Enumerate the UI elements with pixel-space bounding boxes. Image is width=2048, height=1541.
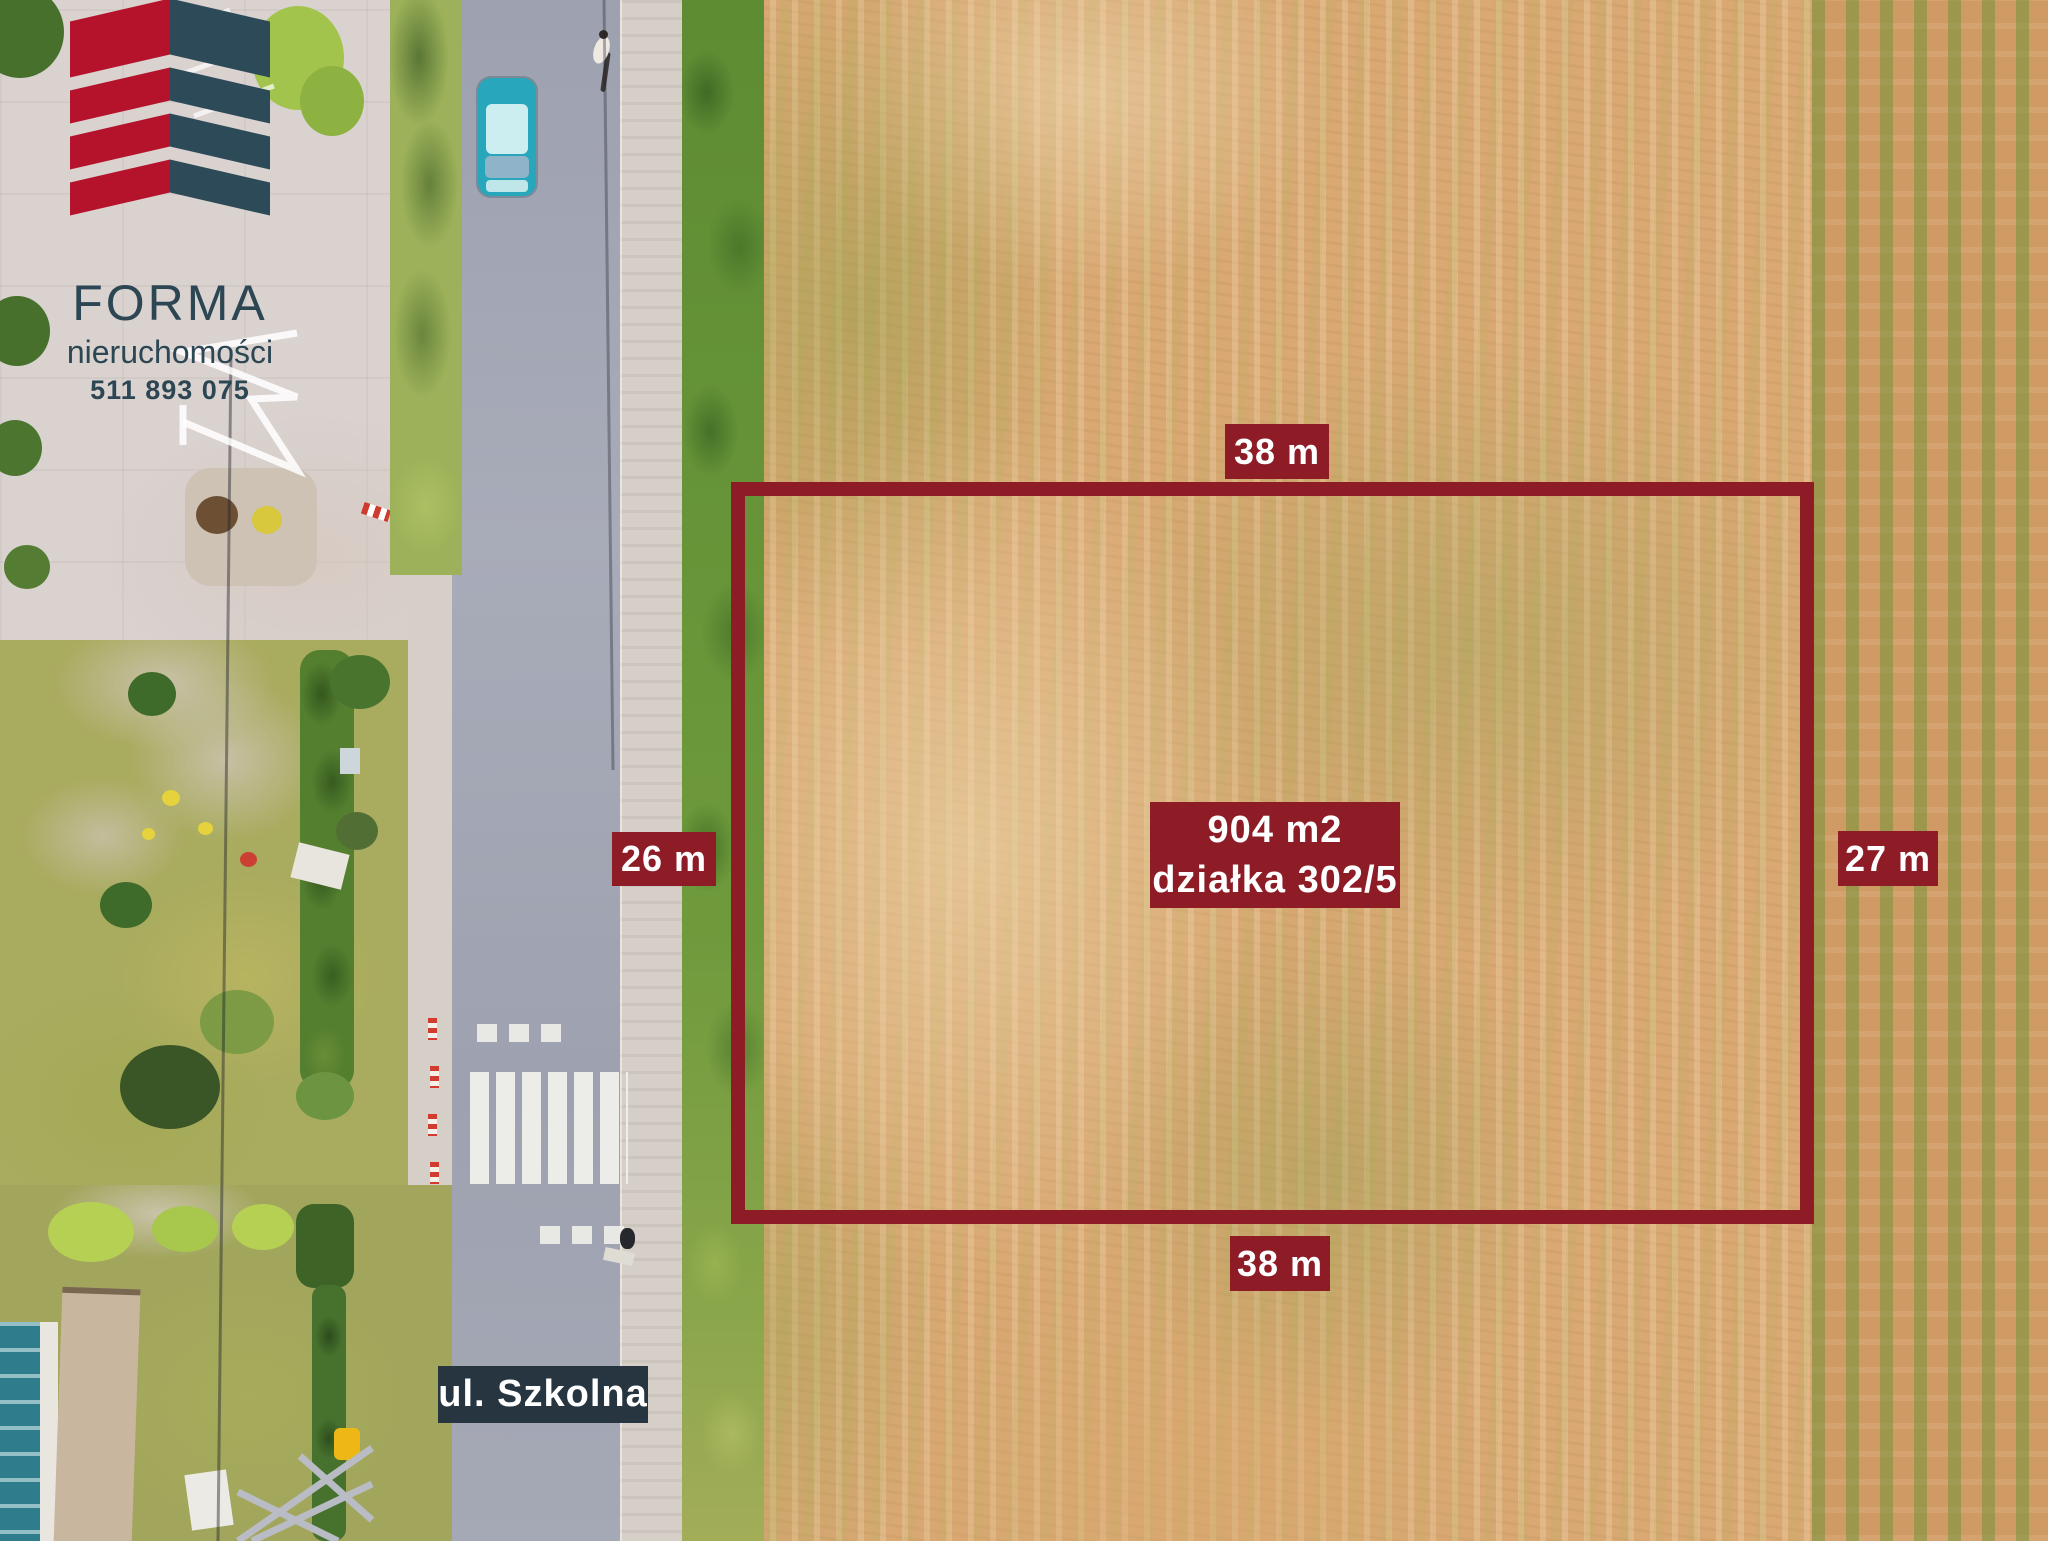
bright-tree [152, 1206, 218, 1252]
barrier-post [430, 1066, 439, 1088]
logo-subtitle: nieruchomości [52, 334, 288, 371]
yellow-container [334, 1428, 360, 1460]
hedge-block [296, 1204, 354, 1288]
agency-logo: FORMA nieruchomości 511 893 075 [52, 10, 288, 406]
pedestrian-crossing [470, 1072, 628, 1184]
logo-brand-name: FORMA [52, 274, 288, 332]
teal-car [478, 78, 536, 196]
asphalt-road [452, 0, 622, 1541]
brown-shrub [196, 496, 238, 534]
plot-area-label: 904 m2 działka 302/5 [1150, 802, 1400, 908]
logo-phone-number: 511 893 075 [52, 375, 288, 406]
yellow-flowers [198, 822, 213, 835]
bright-tree [232, 1204, 294, 1250]
plot-parcel-number: działka 302/5 [1152, 855, 1397, 905]
east-sidewalk [620, 0, 686, 1541]
barrier-post [430, 1162, 439, 1184]
farm-crop-rows [1812, 0, 2048, 1541]
cyclist-head [599, 30, 608, 39]
bright-tree [300, 66, 364, 136]
car-roof [486, 104, 528, 154]
beige-roof-building [54, 1287, 141, 1541]
garden-tree [120, 1045, 220, 1129]
shrub [330, 655, 390, 709]
utility-box [340, 748, 360, 774]
car-hood [486, 180, 528, 192]
yellow-flowers [142, 828, 155, 840]
shrub [100, 882, 152, 928]
shrub [128, 672, 176, 716]
aerial-photo: 38 m 38 m 26 m 27 m 904 m2 działka 302/5… [0, 0, 2048, 1541]
dimension-label-top: 38 m [1225, 424, 1329, 479]
dimension-label-bottom: 38 m [1230, 1236, 1330, 1291]
yellow-bush [252, 506, 282, 534]
pedestrian [620, 1228, 635, 1249]
plot-area-value: 904 m2 [1208, 805, 1343, 855]
street-name-label: ul. Szkolna [438, 1366, 648, 1423]
car-windshield [485, 156, 529, 178]
shrub [336, 812, 378, 850]
barrier-post [428, 1114, 437, 1136]
road-marking-dashes [477, 1024, 567, 1042]
grass-verge [390, 0, 462, 575]
red-flowers [240, 852, 257, 867]
white-panel [184, 1469, 233, 1530]
shrub [200, 990, 274, 1054]
shrub [296, 1072, 354, 1120]
blue-roof-building [0, 1322, 40, 1541]
hedge-row [312, 1285, 346, 1541]
tree [4, 545, 50, 589]
building-logo-icon [70, 10, 270, 248]
bright-tree [48, 1202, 134, 1262]
dimension-label-right: 27 m [1838, 831, 1938, 886]
yellow-flowers [162, 790, 180, 806]
dimension-label-left: 26 m [612, 832, 716, 886]
barrier-post [428, 1018, 437, 1040]
